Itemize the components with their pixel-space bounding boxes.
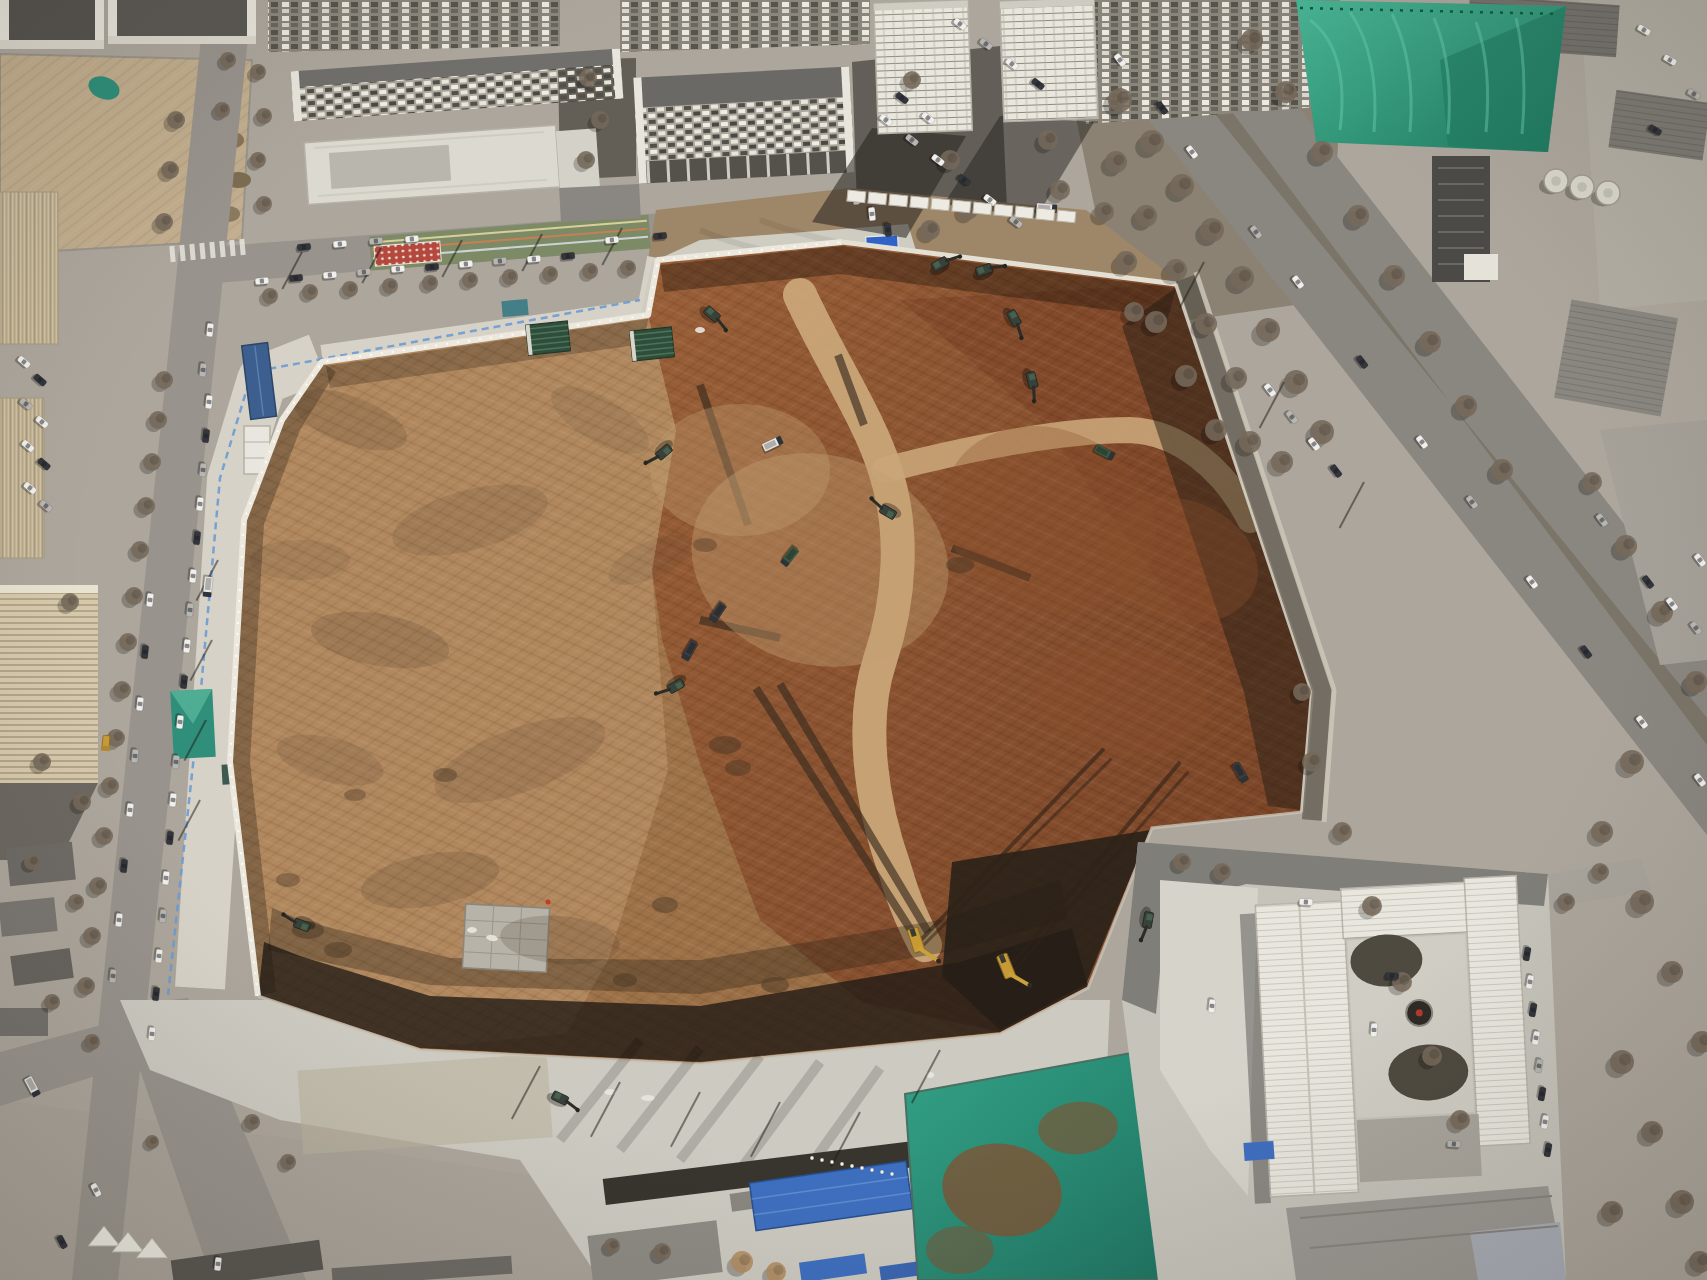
photo-canvas	[0, 0, 1707, 1280]
aerial-construction-photo: Aerial drone photograph of a large urban…	[0, 0, 1707, 1280]
vignette	[0, 0, 1707, 1280]
